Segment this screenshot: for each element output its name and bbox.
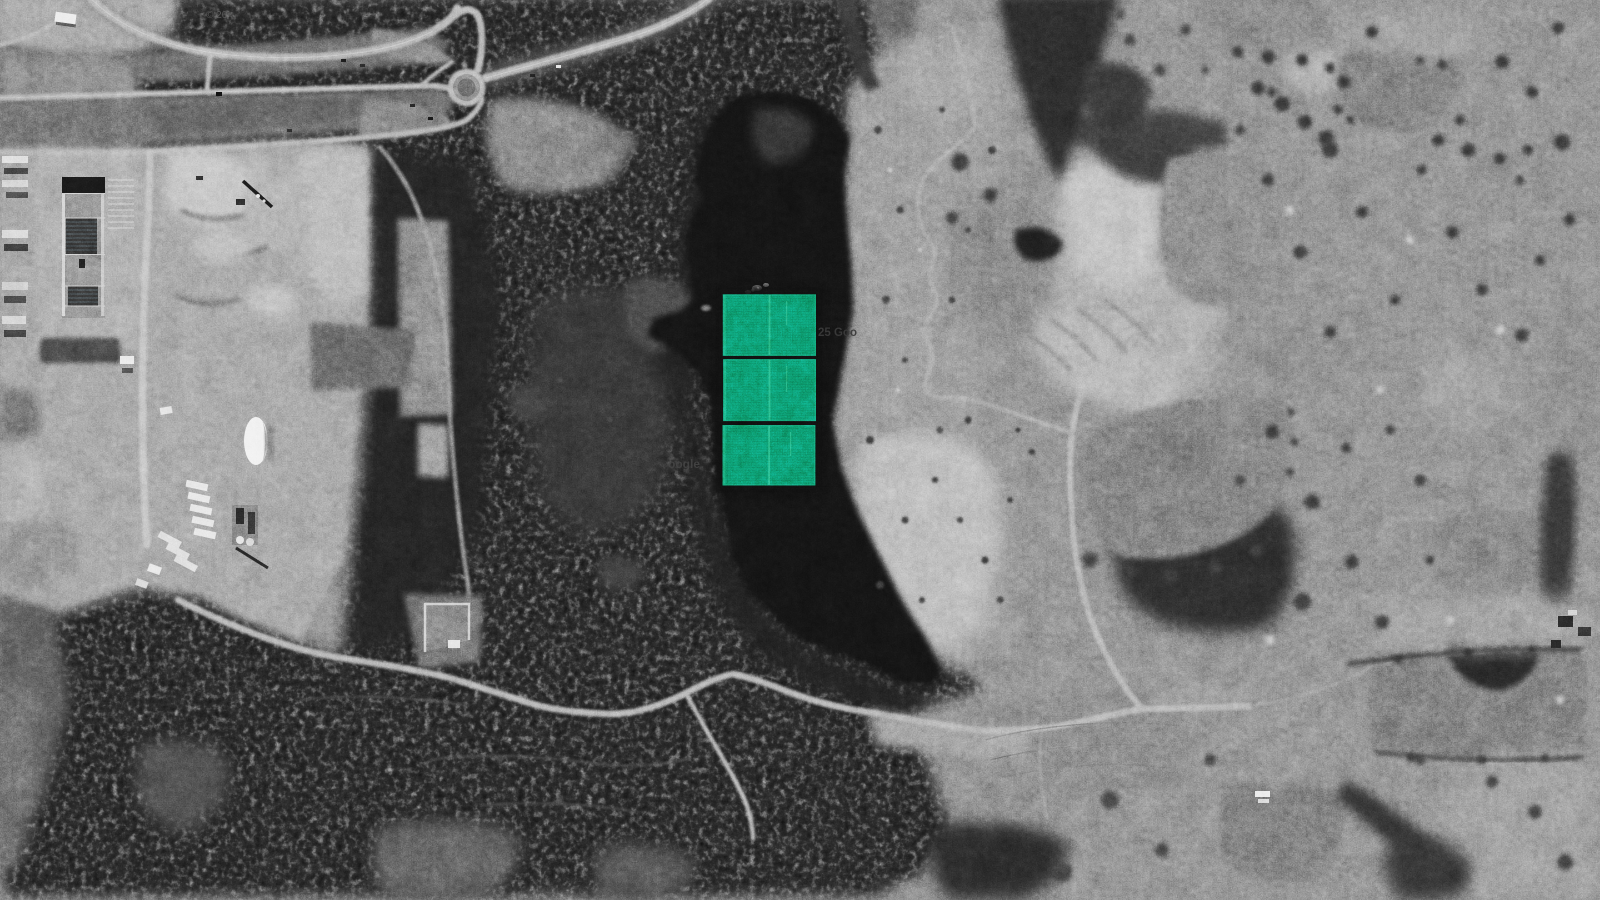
svg-text:25 Goo: 25 Goo: [818, 327, 857, 339]
svg-text:oogle: oogle: [668, 457, 700, 471]
svg-text:© 202: © 202: [683, 55, 716, 69]
svg-text:© 20: © 20: [206, 10, 228, 21]
